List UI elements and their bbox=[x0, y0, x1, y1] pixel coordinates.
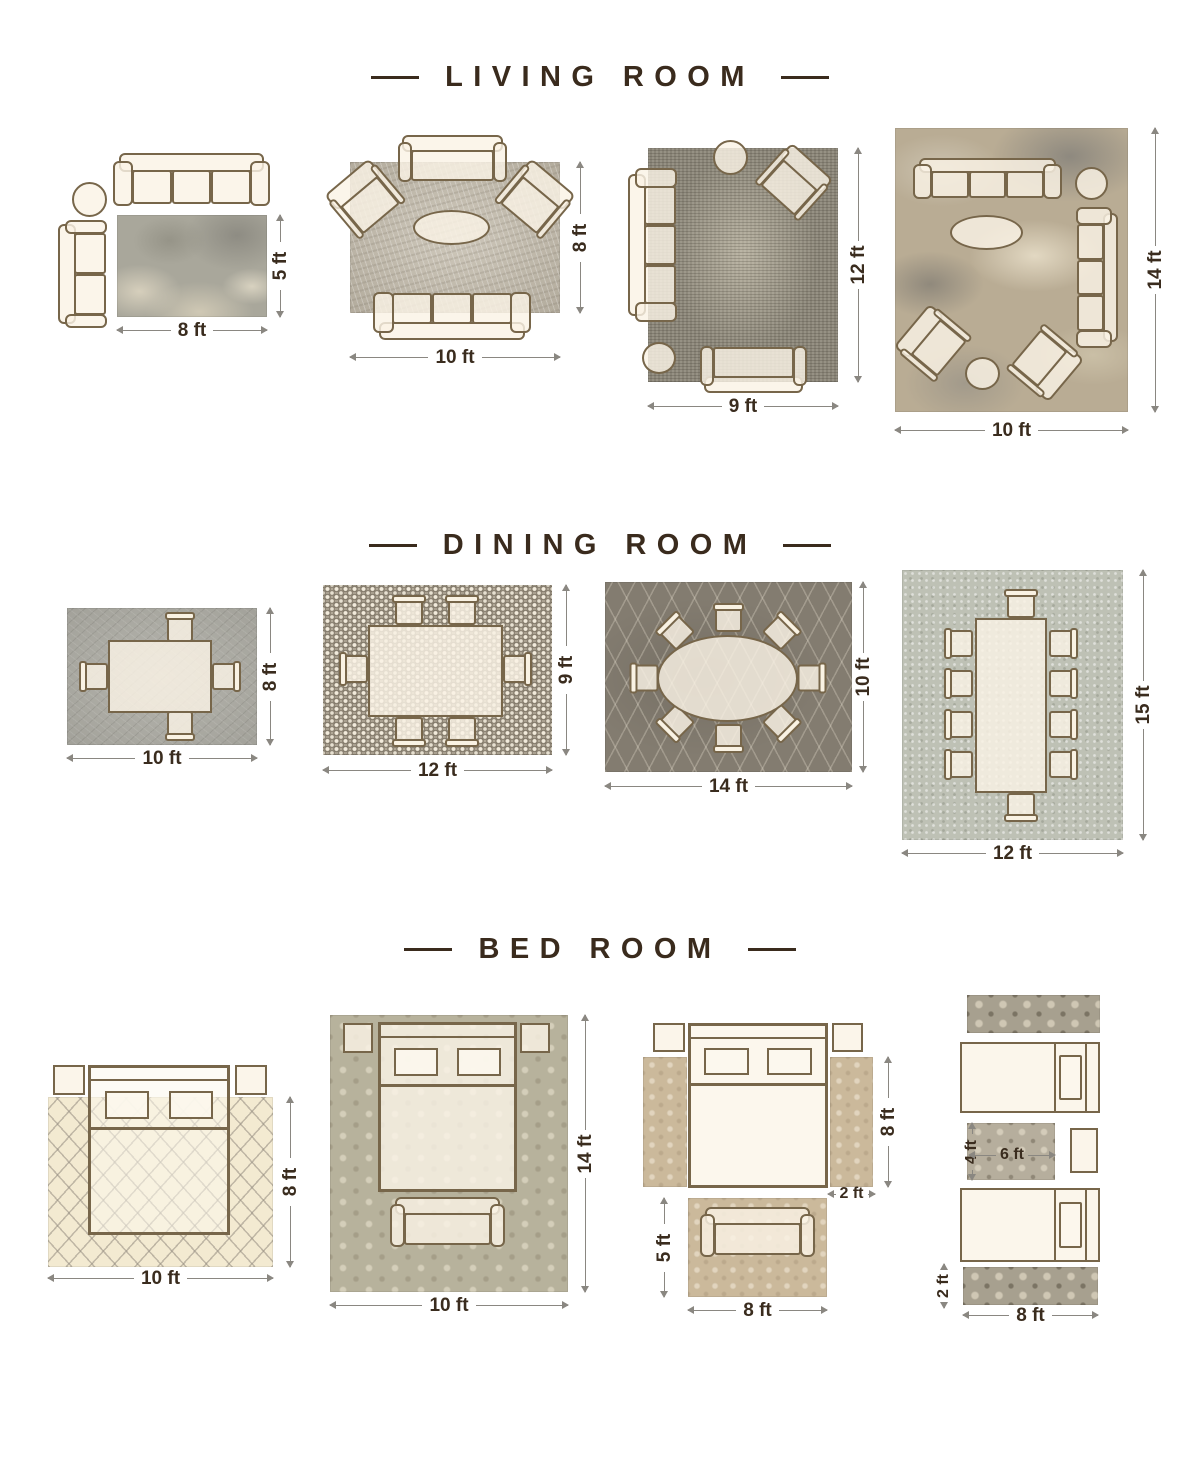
bedroom-layout-1: 8 ft 10 ft bbox=[40, 1058, 310, 1298]
dimension-rug-width: 6 ft bbox=[969, 1146, 1055, 1164]
rug bbox=[117, 215, 267, 317]
dining-chair-icon bbox=[947, 751, 973, 778]
dimension-runner-height: 2 ft bbox=[935, 1264, 953, 1308]
dining-chair-icon bbox=[1049, 630, 1075, 657]
dining-room-layout-4: 15 ft 12 ft bbox=[898, 565, 1168, 880]
dining-room-layout-3: 10 ft 14 ft bbox=[600, 578, 892, 808]
dining-chair-icon bbox=[503, 655, 529, 683]
dining-room-layout-2: 9 ft 12 ft bbox=[318, 585, 588, 795]
dimension-runner-width: 8 ft bbox=[963, 1306, 1098, 1324]
dimension-horizontal: 10 ft bbox=[895, 421, 1128, 439]
dining-chair-icon bbox=[82, 663, 108, 690]
dimension-horizontal: 8 ft bbox=[117, 321, 267, 339]
dining-chair-icon bbox=[1049, 751, 1075, 778]
dimension-horizontal: 10 ft bbox=[67, 749, 257, 767]
sofa-icon bbox=[373, 291, 531, 340]
runner-rug bbox=[963, 1267, 1098, 1305]
sofa-icon bbox=[1075, 207, 1118, 348]
dining-chair-icon bbox=[715, 606, 742, 632]
header-dash-left bbox=[369, 544, 417, 547]
bed-room-header: BED ROOM bbox=[0, 933, 1200, 966]
nightstand-icon bbox=[1070, 1128, 1098, 1173]
sofa-icon bbox=[628, 168, 678, 322]
nightstand-icon bbox=[832, 1023, 863, 1052]
dimension-vertical: 14 ft bbox=[1146, 128, 1164, 412]
dimension-vertical: 8 ft bbox=[571, 162, 589, 313]
section-title: DINING ROOM bbox=[443, 529, 758, 562]
dining-chair-icon bbox=[1049, 670, 1075, 697]
dining-chair-icon bbox=[342, 655, 368, 683]
dimension-horizontal: 9 ft bbox=[648, 397, 838, 415]
nightstand-icon bbox=[520, 1023, 550, 1053]
dimension-vertical: 8 ft bbox=[281, 1097, 299, 1267]
nightstand-icon bbox=[235, 1065, 267, 1095]
dining-chair-icon bbox=[715, 724, 742, 750]
living-room-header: LIVING ROOM bbox=[0, 61, 1200, 94]
round-side-table-icon bbox=[1075, 167, 1108, 200]
header-dash-right bbox=[748, 948, 796, 951]
dimension-horizontal: 12 ft bbox=[902, 844, 1123, 862]
living-room-layout-4: 14 ft 10 ft bbox=[893, 118, 1185, 448]
nightstand-icon bbox=[53, 1065, 85, 1095]
dimension-rug-width: 8 ft bbox=[688, 1301, 827, 1319]
section-title: BED ROOM bbox=[478, 933, 721, 966]
dining-table-icon bbox=[975, 618, 1047, 793]
dining-chair-icon bbox=[1049, 711, 1075, 738]
dimension-rug-height: 5 ft bbox=[655, 1198, 673, 1297]
dimension-runner-width: 2 ft bbox=[828, 1185, 875, 1203]
loveseat-icon bbox=[58, 220, 108, 328]
oval-dining-table-icon bbox=[657, 635, 798, 722]
sofa-icon bbox=[113, 153, 270, 207]
dining-chair-icon bbox=[448, 717, 476, 744]
dimension-vertical: 14 ft bbox=[576, 1015, 594, 1292]
dining-chair-icon bbox=[1007, 592, 1035, 618]
runner-rug bbox=[643, 1057, 687, 1187]
header-dash-right bbox=[781, 76, 829, 79]
oval-coffee-table-icon bbox=[950, 215, 1023, 250]
dining-table-icon bbox=[368, 625, 503, 717]
sofa-icon bbox=[913, 158, 1062, 200]
dimension-vertical: 15 ft bbox=[1134, 570, 1152, 840]
living-room-layout-2: 8 ft 10 ft bbox=[330, 125, 610, 375]
dining-chair-icon bbox=[798, 665, 824, 692]
dimension-horizontal: 10 ft bbox=[350, 348, 560, 366]
rug-size-guide: LIVING ROOM 5 ft 8 ft 8 ft 10 ft 12 ft 9… bbox=[0, 0, 1200, 1467]
loveseat-icon bbox=[398, 135, 507, 183]
dimension-vertical: 8 ft bbox=[261, 608, 279, 745]
bedroom-layout-2: 14 ft 10 ft bbox=[328, 1008, 606, 1328]
header-dash-left bbox=[371, 76, 419, 79]
dining-chair-icon bbox=[395, 598, 423, 625]
dimension-vertical: 5 ft bbox=[271, 215, 289, 317]
bench-icon bbox=[700, 1207, 815, 1258]
living-room-layout-1: 5 ft 8 ft bbox=[48, 140, 308, 355]
living-room-layout-3: 12 ft 9 ft bbox=[618, 138, 886, 430]
round-side-table-icon bbox=[72, 182, 107, 217]
dimension-vertical: 12 ft bbox=[849, 148, 867, 382]
twin-bed-icon bbox=[960, 1188, 1100, 1262]
bed-icon bbox=[688, 1023, 828, 1188]
round-side-table-icon bbox=[965, 357, 1000, 390]
oval-coffee-table-icon bbox=[413, 210, 490, 245]
dimension-horizontal: 10 ft bbox=[330, 1296, 568, 1314]
dimension-horizontal: 12 ft bbox=[323, 761, 552, 779]
dimension-horizontal: 10 ft bbox=[48, 1269, 273, 1287]
bed-icon bbox=[378, 1022, 517, 1192]
bench-icon bbox=[390, 1197, 505, 1248]
dining-chair-icon bbox=[633, 665, 659, 692]
dining-chair-icon bbox=[212, 663, 238, 690]
dimension-vertical: 10 ft bbox=[854, 582, 872, 772]
header-dash-right bbox=[783, 544, 831, 547]
dining-chair-icon bbox=[167, 615, 193, 642]
round-side-table-icon bbox=[713, 140, 748, 175]
dining-chair-icon bbox=[947, 630, 973, 657]
dimension-horizontal: 14 ft bbox=[605, 777, 852, 795]
bedroom-layout-4: 4 ft 6 ft 2 ft 8 ft bbox=[905, 985, 1200, 1340]
dining-chair-icon bbox=[947, 711, 973, 738]
nightstand-icon bbox=[343, 1023, 373, 1053]
nightstand-icon bbox=[653, 1023, 685, 1052]
dining-chair-icon bbox=[947, 670, 973, 697]
header-dash-left bbox=[404, 948, 452, 951]
dining-chair-icon bbox=[395, 717, 423, 744]
dining-room-header: DINING ROOM bbox=[0, 529, 1200, 562]
bedroom-layout-3: 8 ft 2 ft 5 ft 8 ft bbox=[638, 1015, 908, 1335]
dining-chair-icon bbox=[448, 598, 476, 625]
loveseat-icon bbox=[700, 345, 807, 393]
dining-room-layout-1: 8 ft 10 ft bbox=[60, 595, 310, 780]
runner-rug bbox=[967, 995, 1100, 1033]
dining-chair-icon bbox=[1007, 793, 1035, 819]
dimension-vertical: 8 ft bbox=[879, 1057, 897, 1187]
round-side-table-icon bbox=[642, 342, 676, 374]
dimension-vertical: 9 ft bbox=[557, 585, 575, 755]
twin-bed-icon bbox=[960, 1042, 1100, 1113]
dining-table-icon bbox=[108, 640, 212, 713]
dining-chair-icon bbox=[167, 711, 193, 738]
section-title: LIVING ROOM bbox=[445, 61, 755, 94]
bed-icon bbox=[88, 1065, 230, 1235]
